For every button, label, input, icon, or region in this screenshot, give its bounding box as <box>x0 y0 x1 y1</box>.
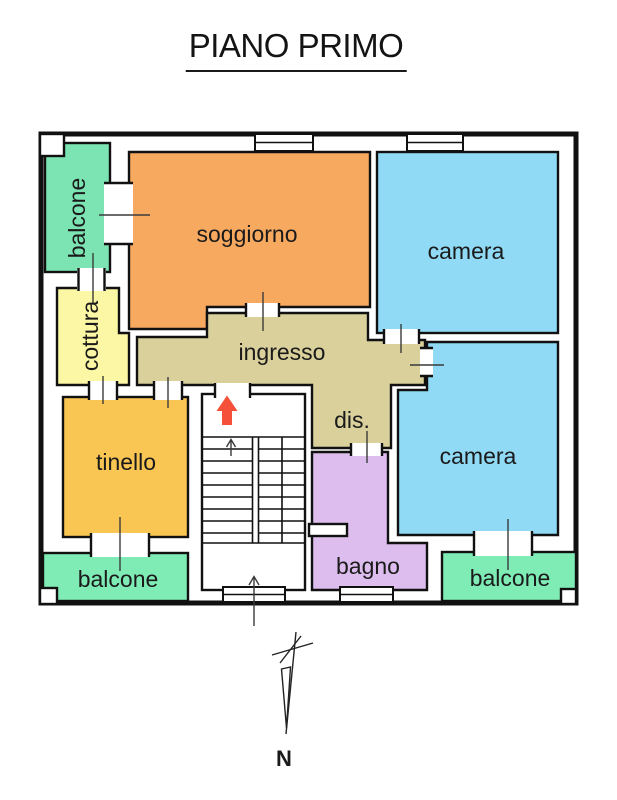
label-cottura: cottura <box>77 301 103 372</box>
compass-cross-lines <box>272 636 313 663</box>
stairwell <box>202 394 305 590</box>
bagno-wall-stub <box>309 524 347 536</box>
door-ingresso-stairwell <box>214 383 251 398</box>
label-balcone-bottom-left: balcone <box>78 566 159 592</box>
window-top-camera <box>407 134 463 151</box>
label-balcone-bottom-right: balcone <box>470 565 551 591</box>
label-ingresso: ingresso <box>239 339 326 365</box>
label-soggiorno: soggiorno <box>196 221 297 247</box>
notch-bottom-right <box>561 589 576 604</box>
label-dis: dis. <box>334 407 370 433</box>
notch-top-left <box>40 134 64 156</box>
floor-plan-drawing: balcone soggiorno camera cottura ingress… <box>0 0 617 800</box>
label-bagno: bagno <box>336 553 400 579</box>
notch-bottom-left <box>40 588 57 604</box>
compass-needle-triangle <box>282 667 291 728</box>
label-camera-top: camera <box>428 238 505 264</box>
label-balcone-top-left: balcone <box>64 178 90 259</box>
window-bottom-bagno <box>340 587 393 602</box>
north-compass: N <box>272 632 313 771</box>
compass-north-label: N <box>276 746 292 771</box>
window-top-soggiorno <box>255 134 313 151</box>
label-camera-bottom: camera <box>440 443 517 469</box>
label-tinello: tinello <box>96 449 156 475</box>
floor-plan-page: PIANO PRIMO <box>0 0 617 800</box>
